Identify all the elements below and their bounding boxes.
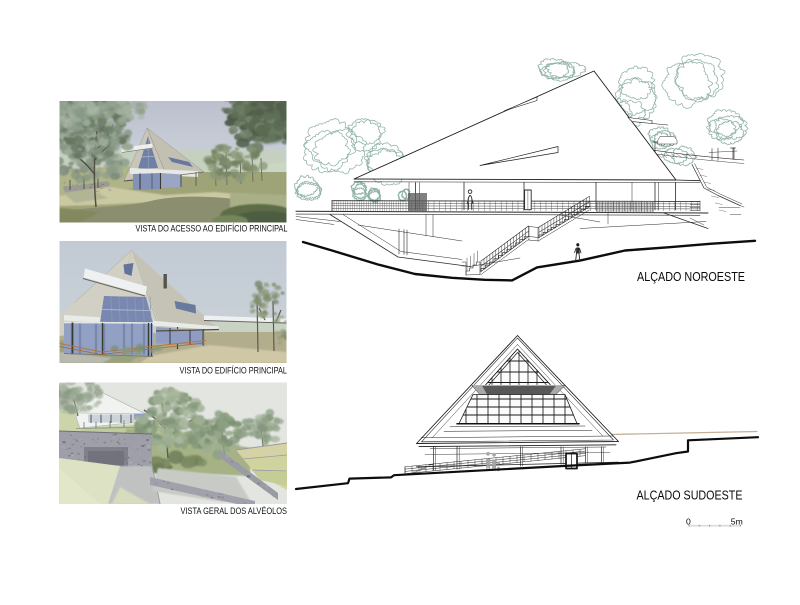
svg-text:VISTA DO EDIFÍCIO PRINCIPAL: VISTA DO EDIFÍCIO PRINCIPAL: [180, 366, 288, 376]
svg-text:VISTA GERAL DOS ALVÉOLOS: VISTA GERAL DOS ALVÉOLOS: [181, 506, 288, 516]
svg-text:VISTA DO ACESSO AO EDIFÍCIO PR: VISTA DO ACESSO AO EDIFÍCIO PRINCIPAL: [136, 224, 288, 234]
svg-text:ALÇADO SUDOESTE: ALÇADO SUDOESTE: [637, 489, 743, 503]
svg-text:ALÇADO NOROESTE: ALÇADO NOROESTE: [637, 270, 745, 284]
